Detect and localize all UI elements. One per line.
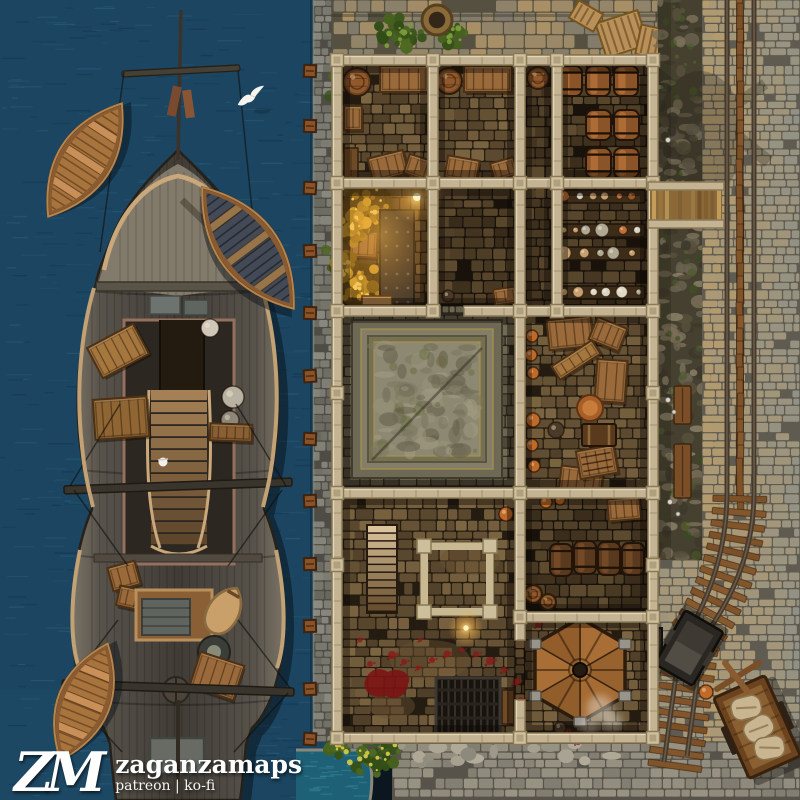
- white-stone: [668, 500, 673, 505]
- barrel: [598, 542, 620, 575]
- crate: [93, 396, 152, 443]
- mooring-post: [304, 683, 317, 696]
- mooring-post: [304, 620, 316, 632]
- wall-beam: [332, 733, 658, 743]
- barrel: [550, 544, 572, 576]
- storage-shelf: [557, 286, 645, 299]
- lantern: [448, 610, 484, 646]
- wall-beam: [332, 306, 440, 316]
- seagull-shadow: [254, 108, 270, 114]
- wall-beam: [332, 178, 658, 188]
- staircase: [366, 524, 398, 614]
- barrel: [614, 110, 639, 140]
- barrel: [574, 541, 596, 574]
- north-street: [332, 0, 677, 61]
- wall-beam: [332, 488, 658, 498]
- clay-pot: [201, 319, 219, 337]
- white-stone: [676, 512, 680, 516]
- round-basket: [422, 5, 452, 35]
- mooring-post: [304, 65, 316, 77]
- vine: [321, 245, 331, 255]
- barrel: [586, 110, 611, 140]
- clay-pot: [548, 422, 564, 438]
- storage-shelf: [557, 223, 645, 237]
- battle-map: ZM zaganzamaps patreon | ko-fi: [0, 0, 800, 800]
- courtyard-platform: [352, 320, 502, 478]
- mooring-post: [304, 307, 316, 319]
- wall-beam: [332, 55, 658, 65]
- mooring-post: [304, 182, 317, 195]
- mooring-post: [304, 120, 316, 132]
- mooring-post: [304, 495, 317, 508]
- wall-beam: [515, 612, 658, 622]
- mooring-post: [304, 370, 317, 383]
- crate: [210, 423, 255, 445]
- street-bench: [674, 386, 691, 424]
- mooring-post: [304, 733, 317, 746]
- white-stone: [666, 398, 671, 403]
- storage-shelf: [557, 246, 645, 260]
- white-stone: [666, 138, 671, 143]
- mooring-post: [304, 433, 316, 445]
- street-bench: [674, 444, 691, 498]
- ship-staircase: [147, 390, 210, 554]
- copper-bowl: [577, 395, 603, 421]
- dockside-warehouse-map: [0, 0, 800, 800]
- chest: [582, 424, 616, 446]
- mooring-post: [304, 558, 316, 570]
- wall-beam: [515, 55, 525, 640]
- wall-beam: [515, 700, 525, 733]
- loading-ramp: [648, 182, 724, 228]
- clay-pot: [699, 685, 713, 699]
- clay-pot: [222, 386, 244, 408]
- white-stone: [672, 410, 676, 414]
- mooring-post: [304, 245, 316, 257]
